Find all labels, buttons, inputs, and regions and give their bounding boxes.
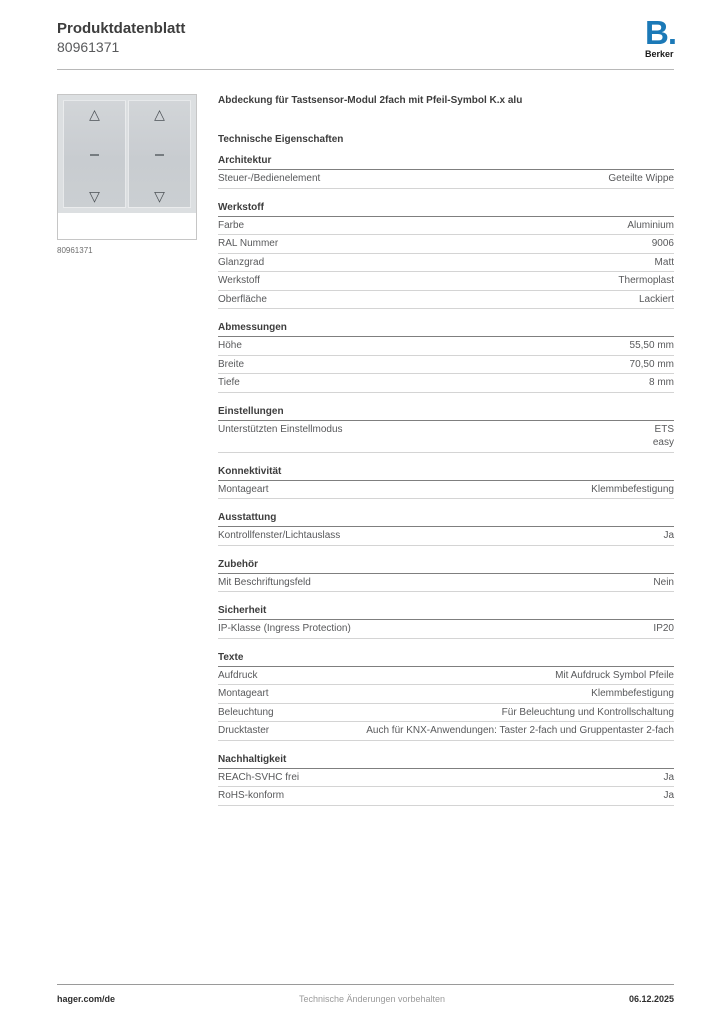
spec-section-title: Architektur: [218, 155, 674, 170]
spec-value: Aluminium: [627, 219, 674, 233]
spec-section-title: Zubehör: [218, 559, 674, 574]
spec-row: RoHS-konformJa: [218, 787, 674, 806]
spec-row: GlanzgradMatt: [218, 254, 674, 273]
spec-label: Höhe: [218, 339, 252, 353]
spec-value: Lackiert: [639, 293, 674, 307]
spec-value: Für Beleuchtung und Kontrollschaltung: [502, 706, 674, 720]
page-footer: hager.com/de Technische Änderungen vorbe…: [57, 984, 674, 1004]
spec-section-konnektivit-t: KonnektivitätMontageartKlemmbefestigung: [218, 466, 674, 500]
spec-row: Tiefe8 mm: [218, 374, 674, 393]
dash-icon: [155, 154, 164, 156]
berker-logo: B. Berker: [645, 16, 676, 59]
spec-row: RAL Nummer9006: [218, 235, 674, 254]
berker-logo-icon: B.: [645, 16, 676, 49]
spec-value: 55,50 mm: [630, 339, 674, 353]
spec-section-zubeh-r: ZubehörMit BeschriftungsfeldNein: [218, 559, 674, 593]
spec-row: FarbeAluminium: [218, 217, 674, 236]
spec-row: WerkstoffThermoplast: [218, 272, 674, 291]
spec-value: Thermoplast: [618, 274, 674, 288]
spec-row: MontageartKlemmbefestigung: [218, 481, 674, 500]
spec-section-architektur: ArchitekturSteuer-/BedienelementGeteilte…: [218, 155, 674, 189]
spec-section-title: Sicherheit: [218, 605, 674, 620]
arrow-up-icon: △: [89, 107, 100, 121]
spec-label: Oberfläche: [218, 293, 277, 307]
page-header: Produktdatenblatt 80961371 B. Berker: [0, 0, 724, 59]
footer-note: Technische Änderungen vorbehalten: [299, 994, 445, 1004]
spec-section-abmessungen: AbmessungenHöhe55,50 mmBreite70,50 mmTie…: [218, 322, 674, 393]
spec-label: Steuer-/Bedienelement: [218, 172, 330, 186]
spec-value: Auch für KNX-Anwendungen: Taster 2-fach …: [366, 724, 674, 738]
spec-section-nachhaltigkeit: NachhaltigkeitREACh-SVHC freiJaRoHS-konf…: [218, 754, 674, 806]
spec-value: Matt: [655, 256, 674, 270]
spec-label: RoHS-konform: [218, 789, 294, 803]
footer-date: 06.12.2025: [629, 994, 674, 1004]
spec-section-title: Ausstattung: [218, 512, 674, 527]
spec-row: Höhe55,50 mm: [218, 337, 674, 356]
spec-label: Unterstützten Einstellmodus: [218, 423, 353, 437]
spec-value: Nein: [653, 576, 674, 590]
spec-value: Ja: [663, 529, 674, 543]
footer-divider: [57, 984, 674, 985]
spec-row: Unterstützten EinstellmodusETS easy: [218, 421, 674, 453]
spec-label: Farbe: [218, 219, 254, 233]
spec-row: OberflächeLackiert: [218, 291, 674, 310]
switch-graphic: △ ▽ △ ▽: [58, 95, 196, 213]
spec-label: Drucktaster: [218, 724, 279, 738]
spec-section-ausstattung: AusstattungKontrollfenster/LichtauslassJ…: [218, 512, 674, 546]
spec-label: RAL Nummer: [218, 237, 288, 251]
spec-label: Breite: [218, 358, 254, 372]
spec-section-title: Nachhaltigkeit: [218, 754, 674, 769]
spec-section-title: Einstellungen: [218, 406, 674, 421]
spec-label: Tiefe: [218, 376, 250, 390]
spec-value: IP20: [653, 622, 674, 636]
spec-value: Mit Aufdruck Symbol Pfeile: [555, 669, 674, 683]
header-divider: [57, 69, 674, 70]
dash-icon: [90, 154, 99, 156]
spec-label: Montageart: [218, 483, 279, 497]
spec-value: Ja: [663, 789, 674, 803]
spec-section-sicherheit: SicherheitIP-Klasse (Ingress Protection)…: [218, 605, 674, 639]
spec-section-einstellungen: EinstellungenUnterstützten Einstellmodus…: [218, 406, 674, 453]
header-product-number: 80961371: [57, 39, 185, 57]
spec-label: REACh-SVHC frei: [218, 771, 309, 785]
spec-row: Kontrollfenster/LichtauslassJa: [218, 527, 674, 546]
spec-row: DrucktasterAuch für KNX-Anwendungen: Tas…: [218, 722, 674, 741]
spec-section-title: Werkstoff: [218, 202, 674, 217]
arrow-down-icon: ▽: [154, 189, 165, 203]
spec-value: 9006: [652, 237, 674, 251]
spec-label: Werkstoff: [218, 274, 270, 288]
spec-value: Geteilte Wippe: [608, 172, 674, 186]
spec-section-title: Abmessungen: [218, 322, 674, 337]
spec-label: Glanzgrad: [218, 256, 274, 270]
header-titles: Produktdatenblatt 80961371: [57, 20, 185, 56]
spec-label: IP-Klasse (Ingress Protection): [218, 622, 361, 636]
product-image: △ ▽ △ ▽: [57, 94, 197, 240]
spec-value: 70,50 mm: [630, 358, 674, 372]
product-title: Abdeckung für Tastsensor-Modul 2fach mit…: [218, 94, 674, 107]
rocker-right: △ ▽: [128, 100, 191, 208]
spec-row: AufdruckMit Aufdruck Symbol Pfeile: [218, 667, 674, 686]
footer-row: hager.com/de Technische Änderungen vorbe…: [57, 994, 674, 1004]
arrow-up-icon: △: [154, 107, 165, 121]
spec-row: Breite70,50 mm: [218, 356, 674, 375]
spec-row: Steuer-/BedienelementGeteilte Wippe: [218, 170, 674, 189]
tech-properties-title: Technische Eigenschaften: [218, 134, 674, 145]
footer-website-link[interactable]: hager.com/de: [57, 994, 115, 1004]
spec-value: ETS easy: [653, 423, 674, 450]
spec-row: IP-Klasse (Ingress Protection)IP20: [218, 620, 674, 639]
spec-label: Aufdruck: [218, 669, 267, 683]
spec-label: Beleuchtung: [218, 706, 284, 720]
spec-label: Mit Beschriftungsfeld: [218, 576, 321, 590]
page-title: Produktdatenblatt: [57, 20, 185, 39]
spec-label: Kontrollfenster/Lichtauslass: [218, 529, 350, 543]
product-image-caption: 80961371: [57, 246, 199, 255]
spec-section-texte: TexteAufdruckMit Aufdruck Symbol PfeileM…: [218, 652, 674, 741]
spec-value: Ja: [663, 771, 674, 785]
spec-value: Klemmbefestigung: [591, 687, 674, 701]
spec-row: MontageartKlemmbefestigung: [218, 685, 674, 704]
arrow-down-icon: ▽: [89, 189, 100, 203]
product-image-column: △ ▽ △ ▽ 80961371: [57, 94, 199, 806]
rocker-left: △ ▽: [63, 100, 126, 208]
spec-value: 8 mm: [649, 376, 674, 390]
datasheet-page: Produktdatenblatt 80961371 B. Berker △ ▽…: [0, 0, 724, 1024]
spec-row: BeleuchtungFür Beleuchtung und Kontrolls…: [218, 704, 674, 723]
spec-section-title: Texte: [218, 652, 674, 667]
spec-column: Abdeckung für Tastsensor-Modul 2fach mit…: [218, 94, 674, 806]
spec-sections: ArchitekturSteuer-/BedienelementGeteilte…: [218, 155, 674, 806]
spec-section-werkstoff: WerkstoffFarbeAluminiumRAL Nummer9006Gla…: [218, 202, 674, 310]
main-content: △ ▽ △ ▽ 80961371 Abdeckung für Tastsenso…: [57, 94, 674, 806]
spec-row: REACh-SVHC freiJa: [218, 769, 674, 788]
spec-label: Montageart: [218, 687, 279, 701]
berker-logo-name: Berker: [645, 49, 676, 59]
spec-section-title: Konnektivität: [218, 466, 674, 481]
spec-value: Klemmbefestigung: [591, 483, 674, 497]
spec-row: Mit BeschriftungsfeldNein: [218, 574, 674, 593]
